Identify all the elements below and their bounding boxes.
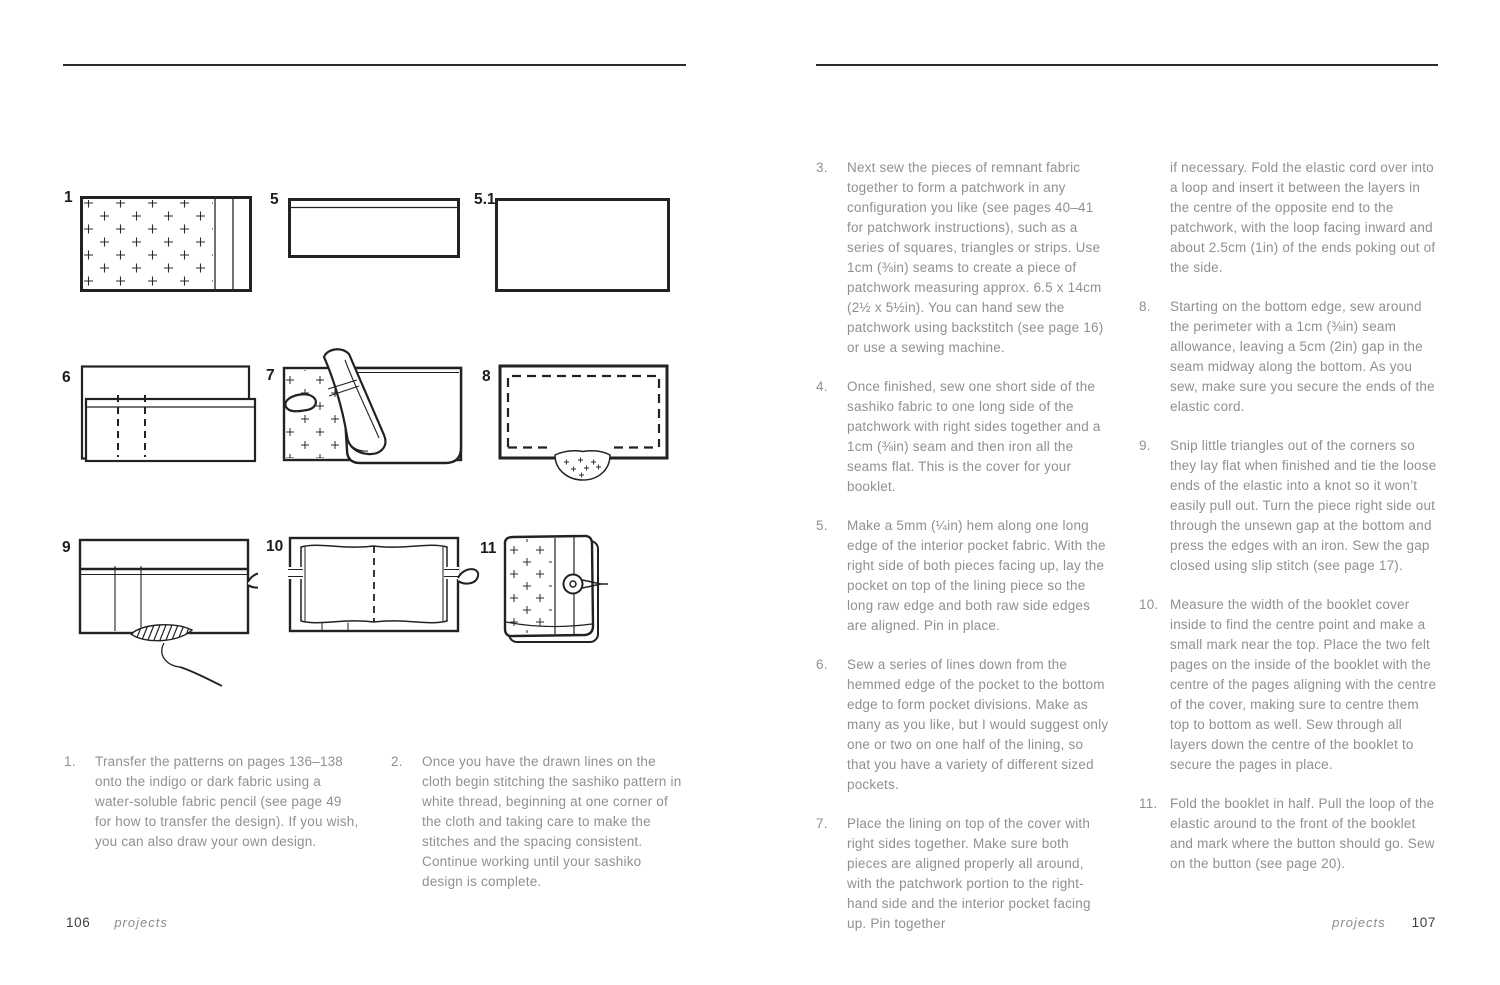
- elastic-loop: [285, 394, 316, 411]
- page-left: 1 5 5.1 6: [0, 0, 750, 985]
- instruction-column-right: if necessary. Fold the elastic cord over…: [1139, 158, 1437, 893]
- figure-5-hemmed-pocket: 5: [270, 188, 470, 268]
- figure-label: 9: [62, 540, 71, 556]
- figure-11-finished-booklet: 11: [480, 530, 625, 660]
- fabric-bulge: [555, 451, 610, 480]
- step-text: Fold the booklet in half. Pull the loop …: [1170, 794, 1437, 874]
- figure-label: 5.1: [474, 192, 496, 208]
- figure-1-sashiko-fabric: 1: [64, 186, 264, 296]
- figure-label: 5: [270, 192, 279, 208]
- page-number: 106: [66, 915, 90, 930]
- instruction-step: 11. Fold the booklet in half. Pull the l…: [1139, 794, 1437, 874]
- instruction-step: 6. Sew a series of lines down from the h…: [816, 655, 1109, 795]
- instruction-step: 4. Once finished, sew one short side of …: [816, 377, 1109, 497]
- instruction-step: if necessary. Fold the elastic cord over…: [1139, 158, 1437, 278]
- step-number: 7.: [816, 814, 847, 834]
- crosses-pattern: [507, 539, 552, 633]
- page-right: 3. Next sew the pieces of remnant fabric…: [750, 0, 1500, 985]
- hemmed-pocket-diagram: [288, 198, 460, 258]
- instruction-step: 1. Transfer the patterns on pages 136–13…: [64, 752, 359, 892]
- figure-label: 8: [482, 369, 491, 385]
- step-text: Once you have the drawn lines on the clo…: [422, 752, 686, 892]
- step-number: 10.: [1139, 595, 1170, 615]
- crosses-pattern: [84, 200, 213, 288]
- book-spread: { "page_left": { "figures": [ {"label": …: [0, 0, 1500, 985]
- elastic-loop: [458, 569, 478, 583]
- step-text: Place the lining on top of the cover wit…: [847, 814, 1109, 934]
- step-text: Sew a series of lines down from the hemm…: [847, 655, 1109, 795]
- figure-9-slip-stitch-gap: 9: [62, 532, 272, 692]
- step-text: Once finished, sew one short side of the…: [847, 377, 1109, 497]
- step-number: 4.: [816, 377, 847, 397]
- figure-8-sewn-perimeter: 8: [482, 360, 687, 490]
- figure-10-pages-sewn: 10: [266, 530, 481, 645]
- page-number: 107: [1412, 915, 1436, 930]
- figure-label: 1: [64, 190, 73, 206]
- instruction-step: 7. Place the lining on top of the cover …: [816, 814, 1109, 934]
- button: [564, 575, 583, 594]
- step-text: Snip little triangles out of the corners…: [1170, 436, 1437, 576]
- step-text: Measure the width of the booklet cover i…: [1170, 595, 1437, 775]
- lining-fold-diagram: [282, 347, 466, 471]
- step-number: 1.: [64, 752, 95, 772]
- sewn-perimeter-diagram: [498, 363, 672, 483]
- step-number: 11.: [1139, 794, 1170, 814]
- sashiko-fabric-diagram: [80, 196, 252, 292]
- footer-right: projects 107: [1332, 915, 1436, 930]
- step-number: 5.: [816, 516, 847, 536]
- instruction-step: 8. Starting on the bottom edge, sew arou…: [1139, 297, 1437, 417]
- step-text: if necessary. Fold the elastic cord over…: [1170, 158, 1437, 278]
- figure-6-pocket-divisions: 6: [62, 360, 272, 470]
- step-text: Starting on the bottom edge, sew around …: [1170, 297, 1437, 417]
- section-title: projects: [1332, 915, 1386, 930]
- instruction-step: 10. Measure the width of the booklet cov…: [1139, 595, 1437, 775]
- pocket-divisions-diagram: [79, 365, 257, 463]
- figure-7-lining-folded-back: 7: [266, 340, 476, 475]
- instruction-column-left: 3. Next sew the pieces of remnant fabric…: [816, 158, 1109, 953]
- elastic-loop: [248, 573, 258, 587]
- lining-piece-diagram: [495, 198, 670, 292]
- step-text: Next sew the pieces of remnant fabric to…: [847, 158, 1109, 358]
- top-rule-right: [816, 64, 1438, 66]
- figure-5-1-lining-piece: 5.1: [474, 188, 684, 298]
- figure-label: 6: [62, 370, 71, 386]
- instruction-step: 5. Make a 5mm (¼in) hem along one long e…: [816, 516, 1109, 636]
- instruction-step: 2. Once you have the drawn lines on the …: [391, 752, 686, 892]
- slip-stitch-diagram: [78, 538, 258, 688]
- step-number: 6.: [816, 655, 847, 675]
- instruction-step: 3. Next sew the pieces of remnant fabric…: [816, 158, 1109, 358]
- instruction-step: 9. Snip little triangles out of the corn…: [1139, 436, 1437, 576]
- step-text: Make a 5mm (¼in) hem along one long edge…: [847, 516, 1109, 636]
- instruction-steps-left: 1. Transfer the patterns on pages 136–13…: [64, 752, 686, 892]
- section-title: projects: [114, 915, 168, 930]
- step-text: Transfer the patterns on pages 136–138 o…: [95, 752, 359, 852]
- finished-booklet-diagram: [494, 532, 618, 654]
- step-number: 9.: [1139, 436, 1170, 456]
- thread: [162, 643, 180, 667]
- figure-label: 10: [266, 539, 283, 555]
- figure-label: 7: [266, 368, 275, 384]
- needle: [180, 667, 222, 686]
- step-number: 8.: [1139, 297, 1170, 317]
- step-number: 2.: [391, 752, 422, 772]
- footer-left: 106 projects: [66, 915, 168, 930]
- pages-sewn-diagram: [288, 536, 482, 636]
- top-rule-left: [63, 64, 686, 66]
- step-number: 3.: [816, 158, 847, 178]
